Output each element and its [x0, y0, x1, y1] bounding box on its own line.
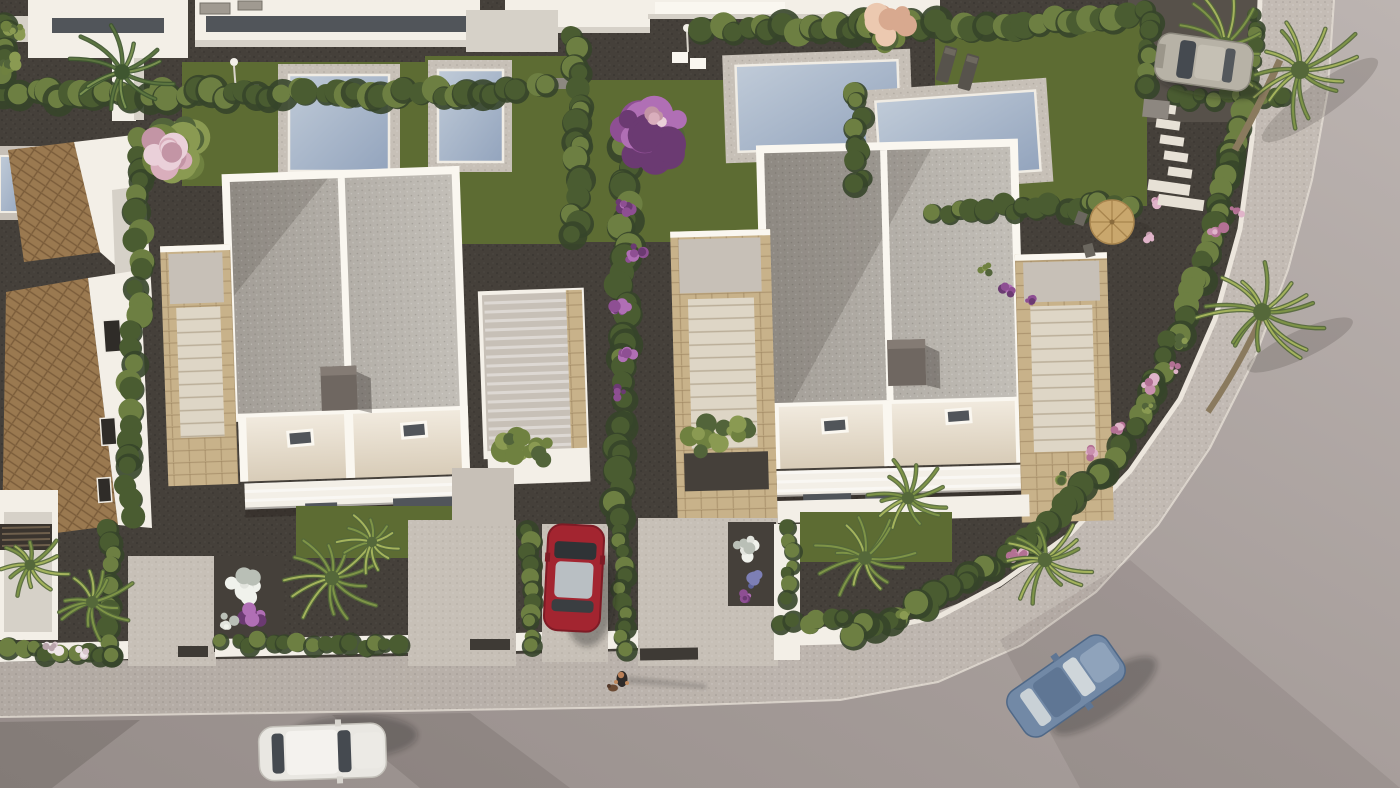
veg-blob: [1145, 378, 1153, 386]
veg-blob: [122, 228, 147, 253]
veg-blob: [389, 634, 408, 653]
veg-blob: [25, 560, 36, 571]
veg-blob: [213, 634, 226, 647]
veg-blob: [975, 199, 996, 220]
veg-blob: [154, 85, 180, 111]
building-b: [195, 0, 480, 47]
veg-blob: [618, 642, 632, 656]
veg-blob: [224, 624, 229, 629]
veg-blob: [630, 249, 638, 257]
skylight-icon: [944, 407, 972, 425]
veg-blob: [272, 85, 290, 103]
veg-blob: [692, 427, 705, 440]
veg-blob: [1007, 291, 1013, 297]
veg-blob: [611, 417, 629, 435]
veg-blob: [306, 638, 320, 652]
veg-blob: [1126, 418, 1144, 436]
veg-blob: [708, 433, 720, 445]
veg-blob: [743, 542, 755, 554]
veg-blob: [1140, 21, 1158, 39]
veg-blob: [614, 388, 621, 395]
scene-canvas: [0, 0, 1400, 788]
veg-blob: [125, 354, 143, 372]
veg-blob: [131, 258, 152, 279]
veg-blob: [1175, 363, 1181, 369]
veg-blob: [162, 142, 183, 163]
veg-blob: [616, 545, 629, 558]
veg-blob: [694, 444, 708, 458]
veg-blob: [505, 79, 525, 99]
veg-blob: [976, 15, 996, 35]
veg-blob: [378, 638, 390, 650]
veg-blob: [123, 199, 147, 223]
veg-blob: [51, 643, 56, 648]
villa-2-front-lawn: [800, 512, 952, 562]
veg-blob: [622, 348, 632, 358]
skylight-icon: [286, 428, 314, 447]
veg-blob: [1, 21, 12, 32]
aerial-render: Aerial 3D render of a modern white villa…: [0, 0, 1400, 788]
veg-blob: [536, 75, 554, 93]
veg-blob: [291, 78, 317, 104]
veg-blob: [97, 616, 118, 637]
veg-blob: [75, 646, 82, 653]
veg-blob: [1238, 211, 1245, 218]
utility-box: [1142, 99, 1170, 120]
veg-blob: [505, 446, 524, 465]
pool-mat: [690, 58, 706, 69]
veg-blob: [780, 592, 792, 604]
veg-blob: [1291, 61, 1309, 79]
veg-blob: [1001, 282, 1009, 290]
shower-icon: [230, 58, 238, 66]
veg-blob: [42, 643, 49, 650]
veg-blob: [638, 248, 647, 257]
pool-mat: [672, 52, 688, 63]
veg-blob: [608, 300, 620, 312]
veg-blob: [1212, 229, 1217, 234]
veg-blob: [985, 269, 992, 276]
veg-blob: [1253, 303, 1271, 321]
roof-unit-icon: [200, 3, 230, 14]
veg-blob: [121, 504, 145, 528]
veg-blob: [858, 551, 872, 565]
veg-blob: [104, 648, 118, 662]
villa-1-stair-tower: [160, 244, 238, 486]
veg-blob: [985, 262, 991, 268]
skylight-icon: [821, 416, 849, 434]
veg-blob: [785, 543, 800, 558]
veg-blob: [1, 67, 9, 75]
veg-blob: [848, 93, 862, 107]
flower-bed-2-soil: [728, 522, 776, 606]
veg-blob: [103, 556, 119, 572]
veg-blob: [836, 611, 848, 623]
veg-blob: [8, 84, 29, 105]
veg-blob: [620, 200, 627, 207]
veg-blob: [235, 567, 252, 584]
veg-blob: [119, 377, 143, 401]
veg-blob: [513, 429, 530, 446]
veg-blob: [1137, 77, 1154, 94]
veg-blob: [119, 457, 136, 474]
veg-blob: [785, 613, 799, 627]
veg-blob: [114, 64, 130, 80]
veg-blob: [1173, 369, 1178, 374]
veg-blob: [10, 59, 22, 71]
veg-blob: [806, 610, 825, 629]
veg-blob: [891, 18, 905, 32]
veg-blob: [1038, 553, 1052, 567]
veg-blob: [367, 537, 377, 547]
veg-blob: [923, 204, 939, 220]
veg-blob: [531, 446, 546, 461]
veg-blob: [1155, 347, 1171, 363]
veg-blob: [1169, 361, 1175, 367]
veg-blob: [325, 571, 339, 585]
veg-blob: [242, 602, 256, 616]
veg-blob: [743, 596, 748, 601]
veg-blob: [729, 416, 746, 433]
veg-blob: [221, 613, 228, 620]
veg-blob: [1182, 338, 1188, 344]
veg-blob: [249, 631, 266, 648]
veg-blob: [631, 243, 637, 249]
veg-blob: [1111, 426, 1119, 434]
veg-blob: [1148, 403, 1153, 408]
veg-blob: [1057, 477, 1065, 485]
veg-blob: [1087, 447, 1095, 455]
veg-blob: [845, 175, 863, 193]
veg-blob: [649, 112, 660, 123]
veg-blob: [844, 119, 862, 137]
veg-blob: [542, 438, 553, 449]
veg-blob: [900, 611, 909, 620]
roof-unit-icon: [238, 1, 262, 10]
veg-blob: [781, 576, 797, 592]
veg-blob: [82, 648, 89, 655]
veg-blob: [524, 638, 538, 652]
veg-blob: [287, 633, 306, 652]
veg-blob: [747, 536, 755, 544]
veg-blob: [844, 150, 864, 170]
veg-blob: [1141, 47, 1157, 63]
veg-blob: [229, 615, 239, 625]
veg-blob: [688, 17, 713, 42]
veg-blob: [341, 635, 357, 651]
veg-blob: [563, 226, 580, 243]
skylight-icon: [400, 420, 428, 439]
villa-2-facade: [771, 401, 1025, 470]
veg-blob: [1218, 222, 1229, 233]
veg-blob: [746, 572, 757, 583]
veg-blob: [523, 614, 535, 626]
veg-blob: [779, 519, 794, 534]
veg-blob: [902, 492, 914, 504]
veg-blob: [1233, 208, 1239, 214]
veg-blob: [621, 389, 626, 394]
veg-blob: [622, 207, 632, 217]
villa-2-stair-tower-west: [670, 229, 778, 532]
veg-blob: [1029, 298, 1036, 305]
veg-blob: [86, 596, 98, 608]
